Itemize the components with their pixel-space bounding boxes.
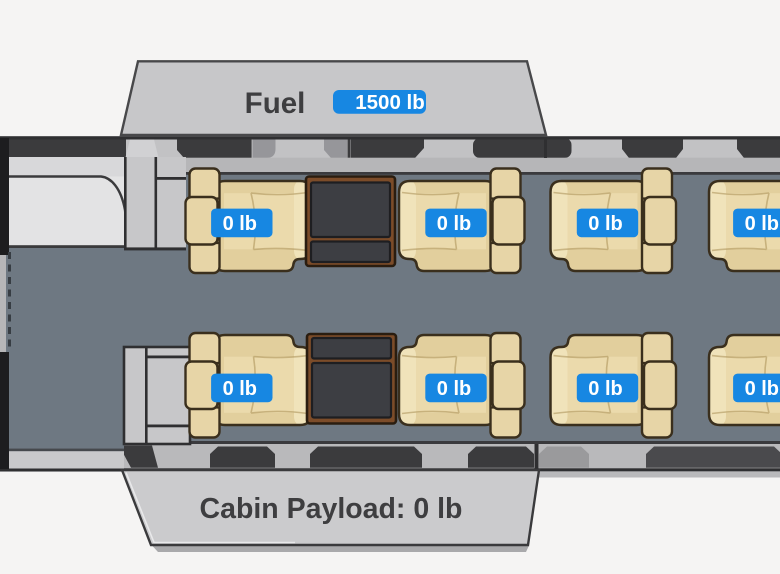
svg-text:0 lb: 0 lb bbox=[588, 213, 622, 235]
svg-text:Cabin Payload: 0 lb: Cabin Payload: 0 lb bbox=[200, 493, 463, 525]
svg-text:0 lb: 0 lb bbox=[437, 213, 471, 235]
svg-text:0 lb: 0 lb bbox=[745, 378, 779, 400]
svg-text:0 lb: 0 lb bbox=[437, 378, 471, 400]
svg-text:0 lb: 0 lb bbox=[223, 213, 257, 235]
svg-text:Fuel: Fuel bbox=[245, 87, 306, 120]
svg-text:0 lb: 0 lb bbox=[588, 378, 622, 400]
svg-text:0 lb: 0 lb bbox=[745, 213, 779, 235]
svg-text:1500 lb: 1500 lb bbox=[355, 91, 425, 114]
svg-text:0 lb: 0 lb bbox=[223, 378, 257, 400]
